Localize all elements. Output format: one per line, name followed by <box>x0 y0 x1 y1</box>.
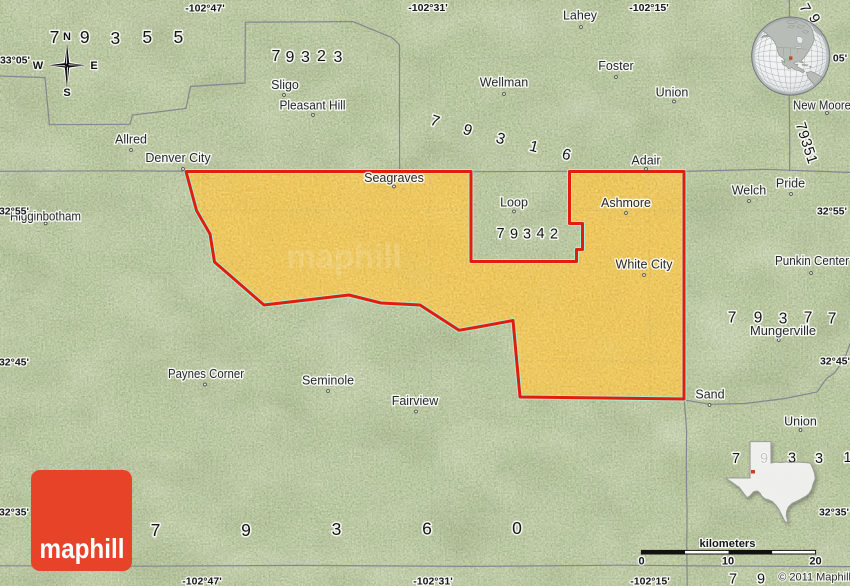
svg-text:White City: White City <box>616 258 674 272</box>
svg-text:9: 9 <box>760 451 768 467</box>
svg-text:9: 9 <box>286 49 295 66</box>
svg-text:Mungerville: Mungerville <box>750 324 816 338</box>
svg-text:Seagraves: Seagraves <box>364 171 424 185</box>
svg-text:32°35': 32°35' <box>0 507 29 519</box>
svg-text:Wellman: Wellman <box>480 76 528 90</box>
svg-text:Punkin Center: Punkin Center <box>775 254 849 268</box>
svg-text:32°45': 32°45' <box>820 356 850 368</box>
svg-text:9: 9 <box>757 572 765 586</box>
svg-text:Allred: Allred <box>115 133 147 147</box>
svg-text:E: E <box>90 60 97 72</box>
svg-text:7: 7 <box>272 48 281 65</box>
svg-text:7: 7 <box>728 310 737 327</box>
svg-text:Fairview: Fairview <box>392 394 440 408</box>
svg-text:1: 1 <box>843 450 850 466</box>
svg-text:5: 5 <box>142 27 152 47</box>
svg-text:9: 9 <box>241 520 251 540</box>
svg-text:S: S <box>63 87 70 99</box>
svg-text:Welch: Welch <box>732 184 767 198</box>
svg-text:9: 9 <box>510 226 518 242</box>
svg-text:Pleasant Hill: Pleasant Hill <box>280 99 346 113</box>
svg-text:32°55': 32°55' <box>817 206 847 218</box>
svg-text:3: 3 <box>332 519 342 539</box>
svg-text:Denver City: Denver City <box>145 151 211 165</box>
svg-text:2: 2 <box>317 48 326 65</box>
svg-text:3: 3 <box>111 28 121 48</box>
svg-text:-102°15': -102°15' <box>629 2 668 14</box>
svg-text:New Moore: New Moore <box>793 99 850 113</box>
svg-text:32°55': 32°55' <box>0 206 29 218</box>
svg-text:W: W <box>33 60 44 72</box>
svg-text:7: 7 <box>828 311 837 328</box>
svg-text:-102°15': -102°15' <box>630 576 669 586</box>
svg-text:N: N <box>63 31 71 43</box>
svg-text:-102°47': -102°47' <box>185 3 224 15</box>
svg-text:3: 3 <box>301 49 310 66</box>
svg-text:© 2011 Maphill: © 2011 Maphill <box>778 572 850 584</box>
svg-text:10: 10 <box>722 556 734 568</box>
svg-text:4: 4 <box>537 226 545 242</box>
svg-text:20: 20 <box>809 556 821 568</box>
svg-text:32°35': 32°35' <box>819 507 849 519</box>
svg-text:0: 0 <box>638 556 644 568</box>
svg-text:7: 7 <box>151 520 161 540</box>
svg-text:7: 7 <box>729 572 737 586</box>
svg-text:Lahey: Lahey <box>563 9 598 23</box>
svg-text:Ashmore: Ashmore <box>601 196 651 210</box>
svg-text:maphill: maphill <box>40 533 125 564</box>
svg-text:3: 3 <box>523 226 531 242</box>
svg-text:Seminole: Seminole <box>302 374 354 388</box>
svg-text:33°05': 33°05' <box>0 55 30 67</box>
svg-text:05': 05' <box>833 53 847 65</box>
svg-text:5: 5 <box>174 27 184 47</box>
svg-text:Adair: Adair <box>631 154 660 168</box>
svg-text:Sligo: Sligo <box>271 78 299 92</box>
svg-text:Union: Union <box>656 86 689 100</box>
svg-text:32°45': 32°45' <box>0 357 29 369</box>
svg-text:Foster: Foster <box>598 59 633 73</box>
svg-text:-102°31': -102°31' <box>413 576 452 586</box>
svg-text:Union: Union <box>784 415 817 429</box>
svg-text:-102°31': -102°31' <box>408 2 447 14</box>
svg-text:maphill: maphill <box>286 238 402 275</box>
svg-text:Loop: Loop <box>500 196 528 210</box>
svg-text:9: 9 <box>80 27 90 47</box>
svg-text:3: 3 <box>815 451 823 467</box>
svg-text:Pride: Pride <box>776 177 805 191</box>
svg-text:Sand: Sand <box>695 388 724 402</box>
svg-text:7: 7 <box>497 226 505 242</box>
svg-text:7: 7 <box>50 27 60 47</box>
svg-text:7: 7 <box>732 451 740 467</box>
svg-text:3: 3 <box>334 49 343 66</box>
svg-text:-102°47': -102°47' <box>182 576 221 586</box>
svg-text:2: 2 <box>550 226 558 242</box>
svg-text:6: 6 <box>422 519 432 539</box>
svg-text:Paynes Corner: Paynes Corner <box>168 367 244 381</box>
svg-text:kilometers: kilometers <box>700 538 756 550</box>
svg-text:0: 0 <box>512 518 522 538</box>
